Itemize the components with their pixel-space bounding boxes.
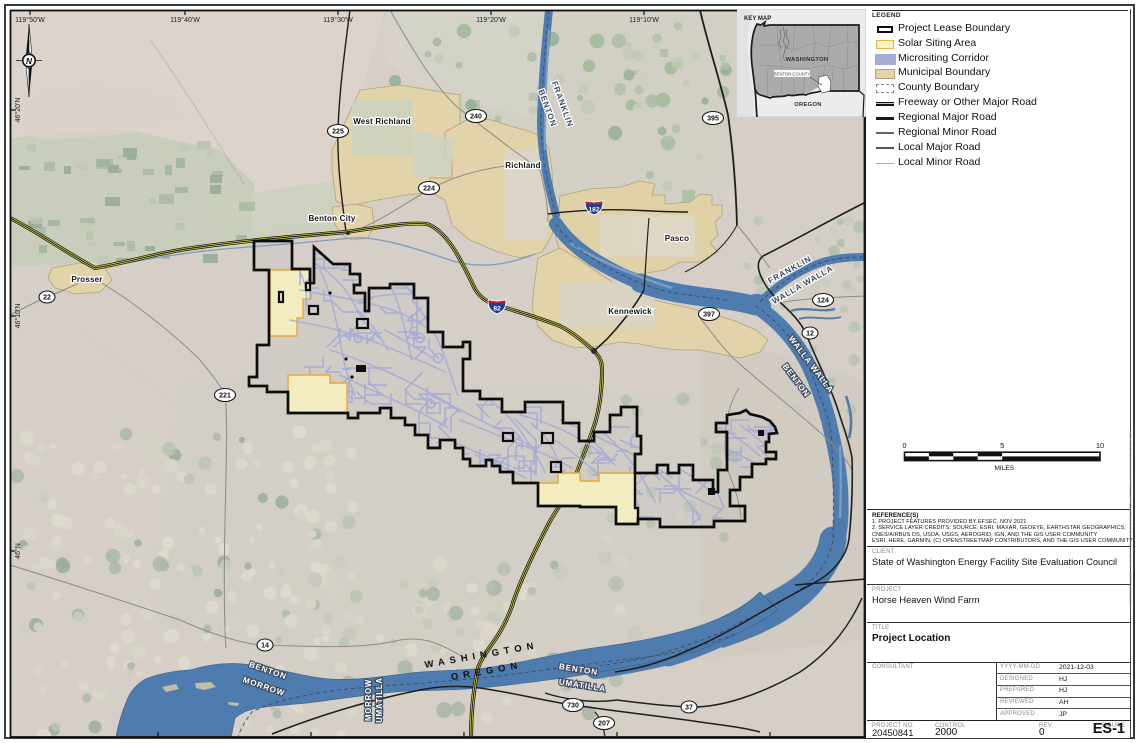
- svg-text:37: 37: [685, 704, 693, 711]
- svg-text:0: 0: [902, 441, 906, 450]
- svg-text:10: 10: [1096, 441, 1104, 450]
- svg-text:224: 224: [423, 185, 435, 192]
- svg-text:397: 397: [703, 311, 715, 318]
- svg-text:182: 182: [588, 207, 599, 214]
- svg-text:124: 124: [817, 297, 829, 304]
- svg-text:MORROW: MORROW: [364, 679, 373, 721]
- svg-text:240: 240: [470, 113, 482, 120]
- svg-text:Prosser: Prosser: [71, 275, 102, 284]
- svg-text:14: 14: [261, 642, 269, 649]
- svg-text:82: 82: [493, 306, 501, 313]
- svg-text:N: N: [26, 56, 33, 66]
- svg-text:22: 22: [43, 294, 51, 301]
- svg-text:UMATILLA: UMATILLA: [375, 677, 384, 723]
- svg-text:12: 12: [806, 330, 814, 337]
- svg-text:221: 221: [219, 392, 231, 399]
- svg-text:46°10'N: 46°10'N: [14, 304, 22, 329]
- svg-text:Kennewick: Kennewick: [608, 307, 652, 316]
- svg-text:Richland: Richland: [505, 161, 540, 170]
- svg-text:225: 225: [332, 128, 344, 135]
- svg-text:119°10'W: 119°10'W: [629, 16, 659, 24]
- svg-text:119°40'W: 119°40'W: [170, 16, 200, 24]
- svg-text:46°N: 46°N: [14, 543, 22, 559]
- svg-text:Benton City: Benton City: [308, 214, 355, 223]
- svg-text:KEY MAP: KEY MAP: [744, 16, 771, 22]
- svg-text:395: 395: [707, 115, 719, 122]
- svg-text:BENTON COUNTY: BENTON COUNTY: [774, 71, 810, 76]
- svg-text:730: 730: [567, 702, 579, 709]
- svg-text:46°20'N: 46°20'N: [14, 98, 22, 123]
- svg-text:5: 5: [1000, 441, 1004, 450]
- svg-text:207: 207: [598, 720, 610, 727]
- svg-text:OREGON: OREGON: [794, 102, 822, 108]
- svg-text:WASHINGTON: WASHINGTON: [786, 57, 829, 63]
- svg-text:MILES: MILES: [994, 465, 1014, 472]
- svg-text:119°30'W: 119°30'W: [323, 16, 353, 24]
- svg-text:West Richland: West Richland: [353, 117, 411, 126]
- svg-text:Pasco: Pasco: [665, 234, 690, 243]
- svg-text:119°20'W: 119°20'W: [476, 16, 506, 24]
- svg-text:119°50'W: 119°50'W: [15, 16, 45, 24]
